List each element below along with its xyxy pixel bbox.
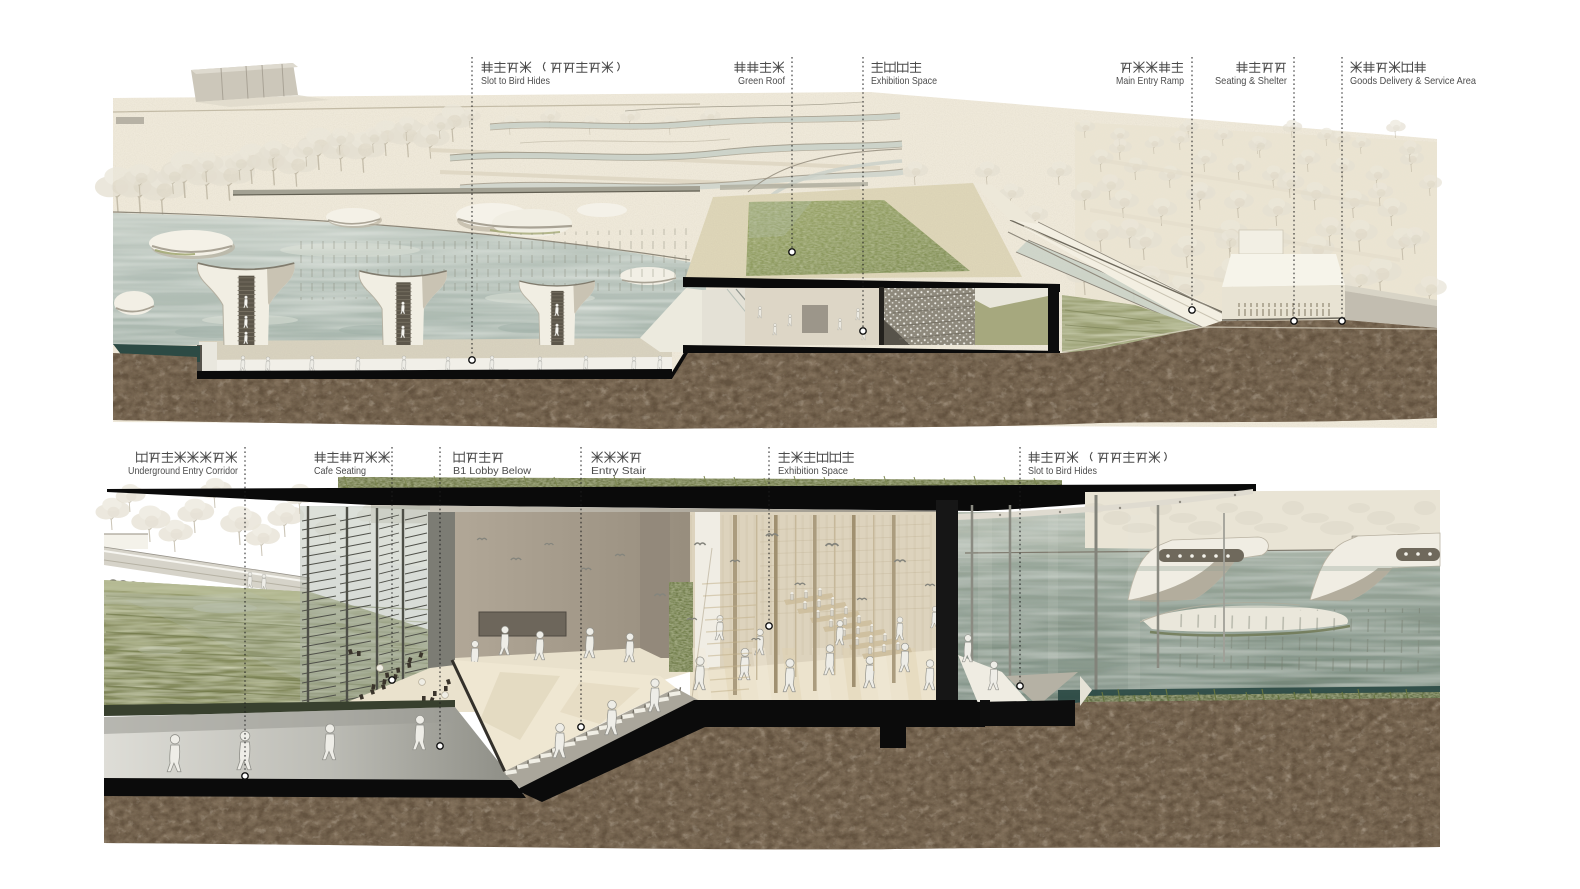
svg-text:Exhibition Space: Exhibition Space xyxy=(778,465,848,477)
svg-text:Slot to Bird Hides: Slot to Bird Hides xyxy=(1028,465,1097,477)
svg-text:B1 Lobby Below: B1 Lobby Below xyxy=(453,465,531,477)
svg-text:Exhibition Space: Exhibition Space xyxy=(871,75,937,87)
svg-text:Slot to Bird Hides: Slot to Bird Hides xyxy=(481,75,550,87)
svg-text:Green Roof: Green Roof xyxy=(738,75,785,87)
svg-text:Underground Entry Corridor: Underground Entry Corridor xyxy=(128,465,238,477)
svg-text:Seating & Shelter: Seating & Shelter xyxy=(1215,75,1287,87)
svg-text:Main Entry Ramp: Main Entry Ramp xyxy=(1116,75,1184,87)
svg-text:Entry Stair: Entry Stair xyxy=(591,465,647,477)
svg-text:Goods Delivery & Service Area: Goods Delivery & Service Area xyxy=(1350,75,1476,87)
svg-text:Cafe Seating: Cafe Seating xyxy=(314,465,366,477)
